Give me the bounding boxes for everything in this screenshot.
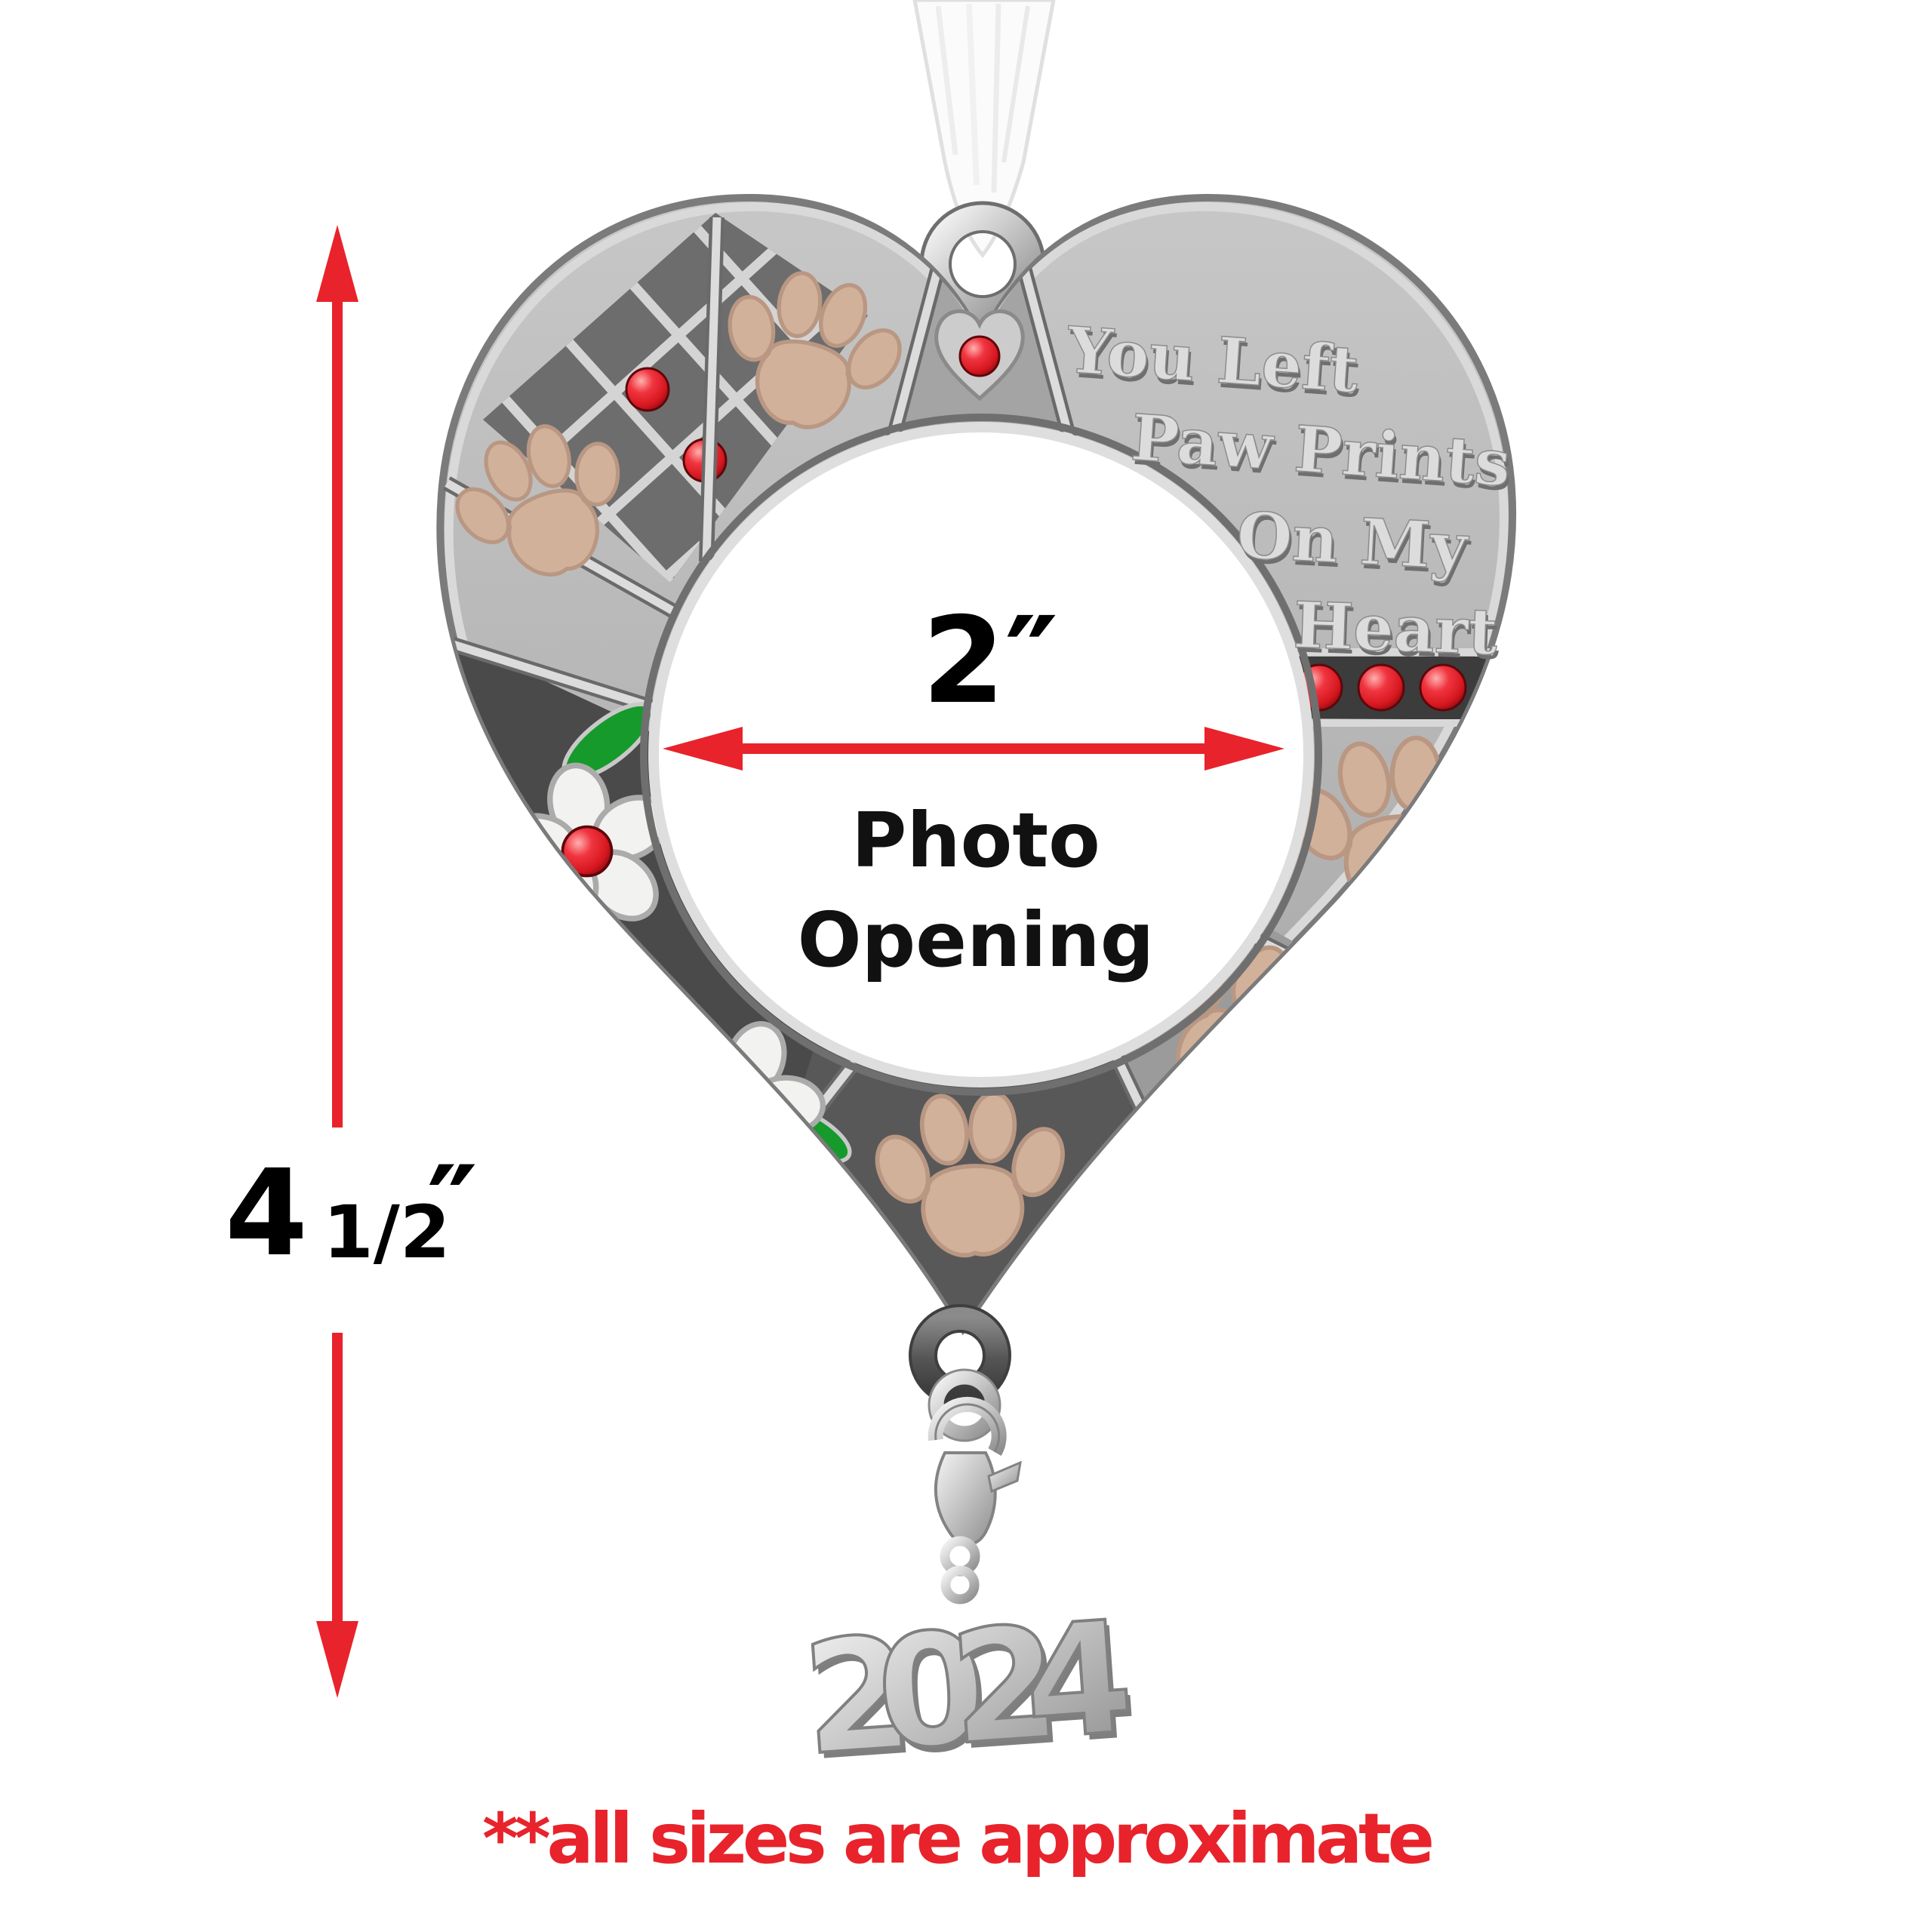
engraved-text: Heart (1292, 587, 1499, 669)
crystal (960, 337, 999, 376)
engraved-text: On My (1235, 497, 1471, 584)
ornament-scene: You Left You Left Paw Prints Paw Prints … (0, 0, 1932, 1932)
height-label-unit: ″ (427, 1143, 478, 1274)
height-dimension-arrow (316, 225, 358, 1698)
crystal (1358, 665, 1404, 710)
width-label: 2″ (922, 592, 1059, 731)
photo-opening-label-line1: Photo (851, 796, 1100, 884)
disclaimer-text: **all sizes are approximate (482, 1798, 1435, 1879)
year-charm: 2024 2024 (798, 1588, 1143, 1796)
year-charm-face: 2024 (798, 1588, 1139, 1790)
photo-opening-label-line2: Opening (798, 896, 1155, 984)
connector-ring (946, 1571, 974, 1599)
height-label: 4 1/2 ″ (225, 1143, 478, 1283)
crystal (626, 368, 669, 411)
height-label-whole: 4 (225, 1144, 308, 1283)
product-dimension-image: You Left You Left Paw Prints Paw Prints … (0, 0, 1932, 1932)
charm-assembly: 2024 2024 (798, 1306, 1143, 1796)
